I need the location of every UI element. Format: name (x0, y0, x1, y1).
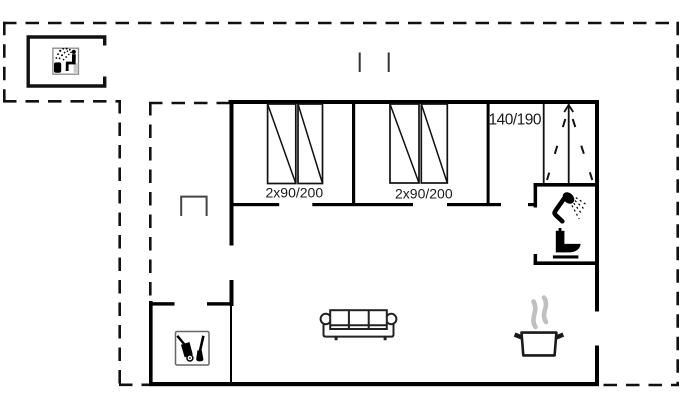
svg-text:2x90/200: 2x90/200 (266, 185, 324, 201)
svg-text:140/190: 140/190 (489, 112, 542, 129)
svg-text:2x90/200: 2x90/200 (395, 186, 453, 202)
